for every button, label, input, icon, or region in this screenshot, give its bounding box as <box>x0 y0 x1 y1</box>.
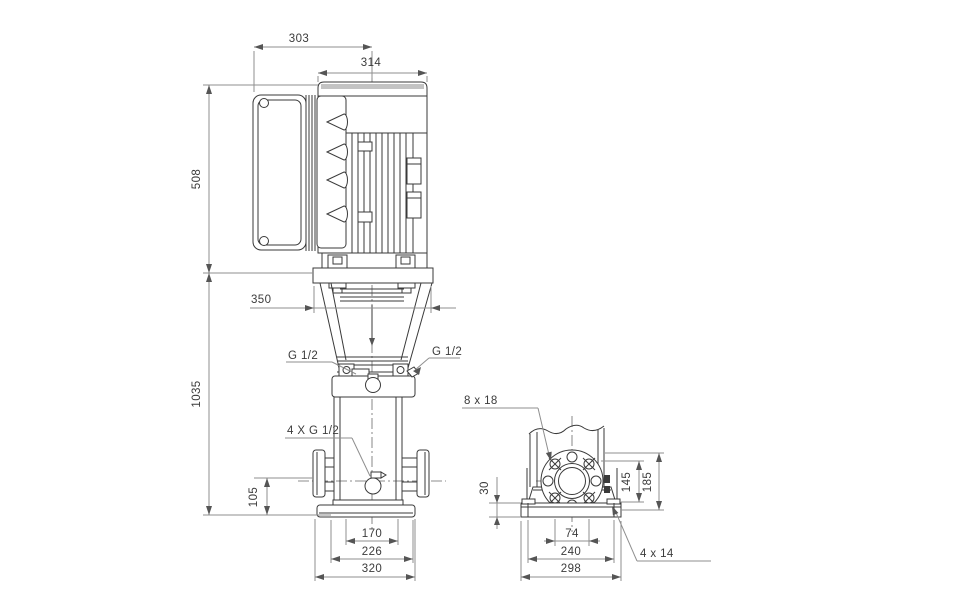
label-g12-right: G 1/2 <box>432 346 462 358</box>
fin-break-upper <box>358 142 372 151</box>
terminal-vent-upper <box>407 158 421 184</box>
pump-dimensional-drawing: 303 314 508 1035 350 <box>0 0 976 600</box>
flange-side-tag <box>604 475 610 483</box>
side-view: 303 314 508 1035 350 <box>191 33 462 581</box>
label-4x14: 4 x 14 <box>640 548 674 560</box>
dim-508-label: 508 <box>191 169 203 189</box>
stool-leg-left-inner <box>331 283 346 360</box>
label-4xg12: 4 X G 1/2 <box>287 425 339 437</box>
base-plate-outline <box>521 503 621 517</box>
cover-screw-bottom <box>260 237 269 246</box>
stool-leg-left-outer <box>320 283 339 368</box>
foot-bolt-right <box>401 257 410 264</box>
dim-30-label: 30 <box>479 481 491 495</box>
dim-170-label: 170 <box>362 528 382 540</box>
gauge-port-circle <box>366 378 381 393</box>
dim-105-label: 105 <box>248 487 260 507</box>
stool-leg-right-inner <box>401 283 421 360</box>
dim-350-label: 350 <box>251 294 271 306</box>
technical-drawing-page: 303 314 508 1035 350 <box>0 0 976 600</box>
gauge-plug-left <box>352 369 369 376</box>
drain-plug <box>365 472 386 494</box>
dim-320-label: 320 <box>362 563 382 575</box>
motor-stool <box>313 253 433 368</box>
end-view: 8 x 18 30 145 185 <box>462 395 711 581</box>
dim-314-label: 314 <box>361 57 382 69</box>
terminal-vent-lower <box>407 192 421 218</box>
shaft-arrow <box>369 338 375 346</box>
fin-break-lower <box>358 212 372 222</box>
flange-disc-right <box>417 450 429 497</box>
plate-nut-right <box>398 283 415 288</box>
head-boss-right <box>393 364 408 376</box>
flange-disc-left <box>313 450 325 497</box>
control-box-cover <box>253 95 306 250</box>
drain-plug-circle <box>365 478 381 494</box>
drain-tag <box>371 472 381 478</box>
dim-1035-label: 1035 <box>191 380 203 407</box>
base-body <box>317 505 415 517</box>
dim-74-label: 74 <box>565 528 579 540</box>
dim-240-label: 240 <box>561 546 581 558</box>
dim-185-label: 185 <box>642 472 654 492</box>
foot-bolt-left <box>333 257 342 264</box>
flange-side-tag-lower <box>604 486 610 493</box>
base-top-plate <box>333 500 403 505</box>
dim-303-label: 303 <box>289 33 309 45</box>
pump-base <box>317 500 415 517</box>
suction-flange <box>313 450 334 497</box>
discharge-flange <box>402 450 429 497</box>
motor-cap-hatch <box>321 84 424 89</box>
label-g12-left: G 1/2 <box>288 350 318 362</box>
break-line <box>529 425 604 434</box>
dim-226-label: 226 <box>362 546 382 558</box>
cover-hinge-lines <box>306 95 315 251</box>
stool-leg-right-outer <box>408 283 432 368</box>
dim-145-label: 145 <box>621 472 633 492</box>
cover-screw-top <box>260 99 269 108</box>
label-8x18: 8 x 18 <box>464 395 498 407</box>
stool-top-plate <box>313 268 433 283</box>
dim-298-label: 298 <box>561 563 581 575</box>
control-box <box>253 95 348 251</box>
leader-arrow-8x18 <box>546 452 552 461</box>
